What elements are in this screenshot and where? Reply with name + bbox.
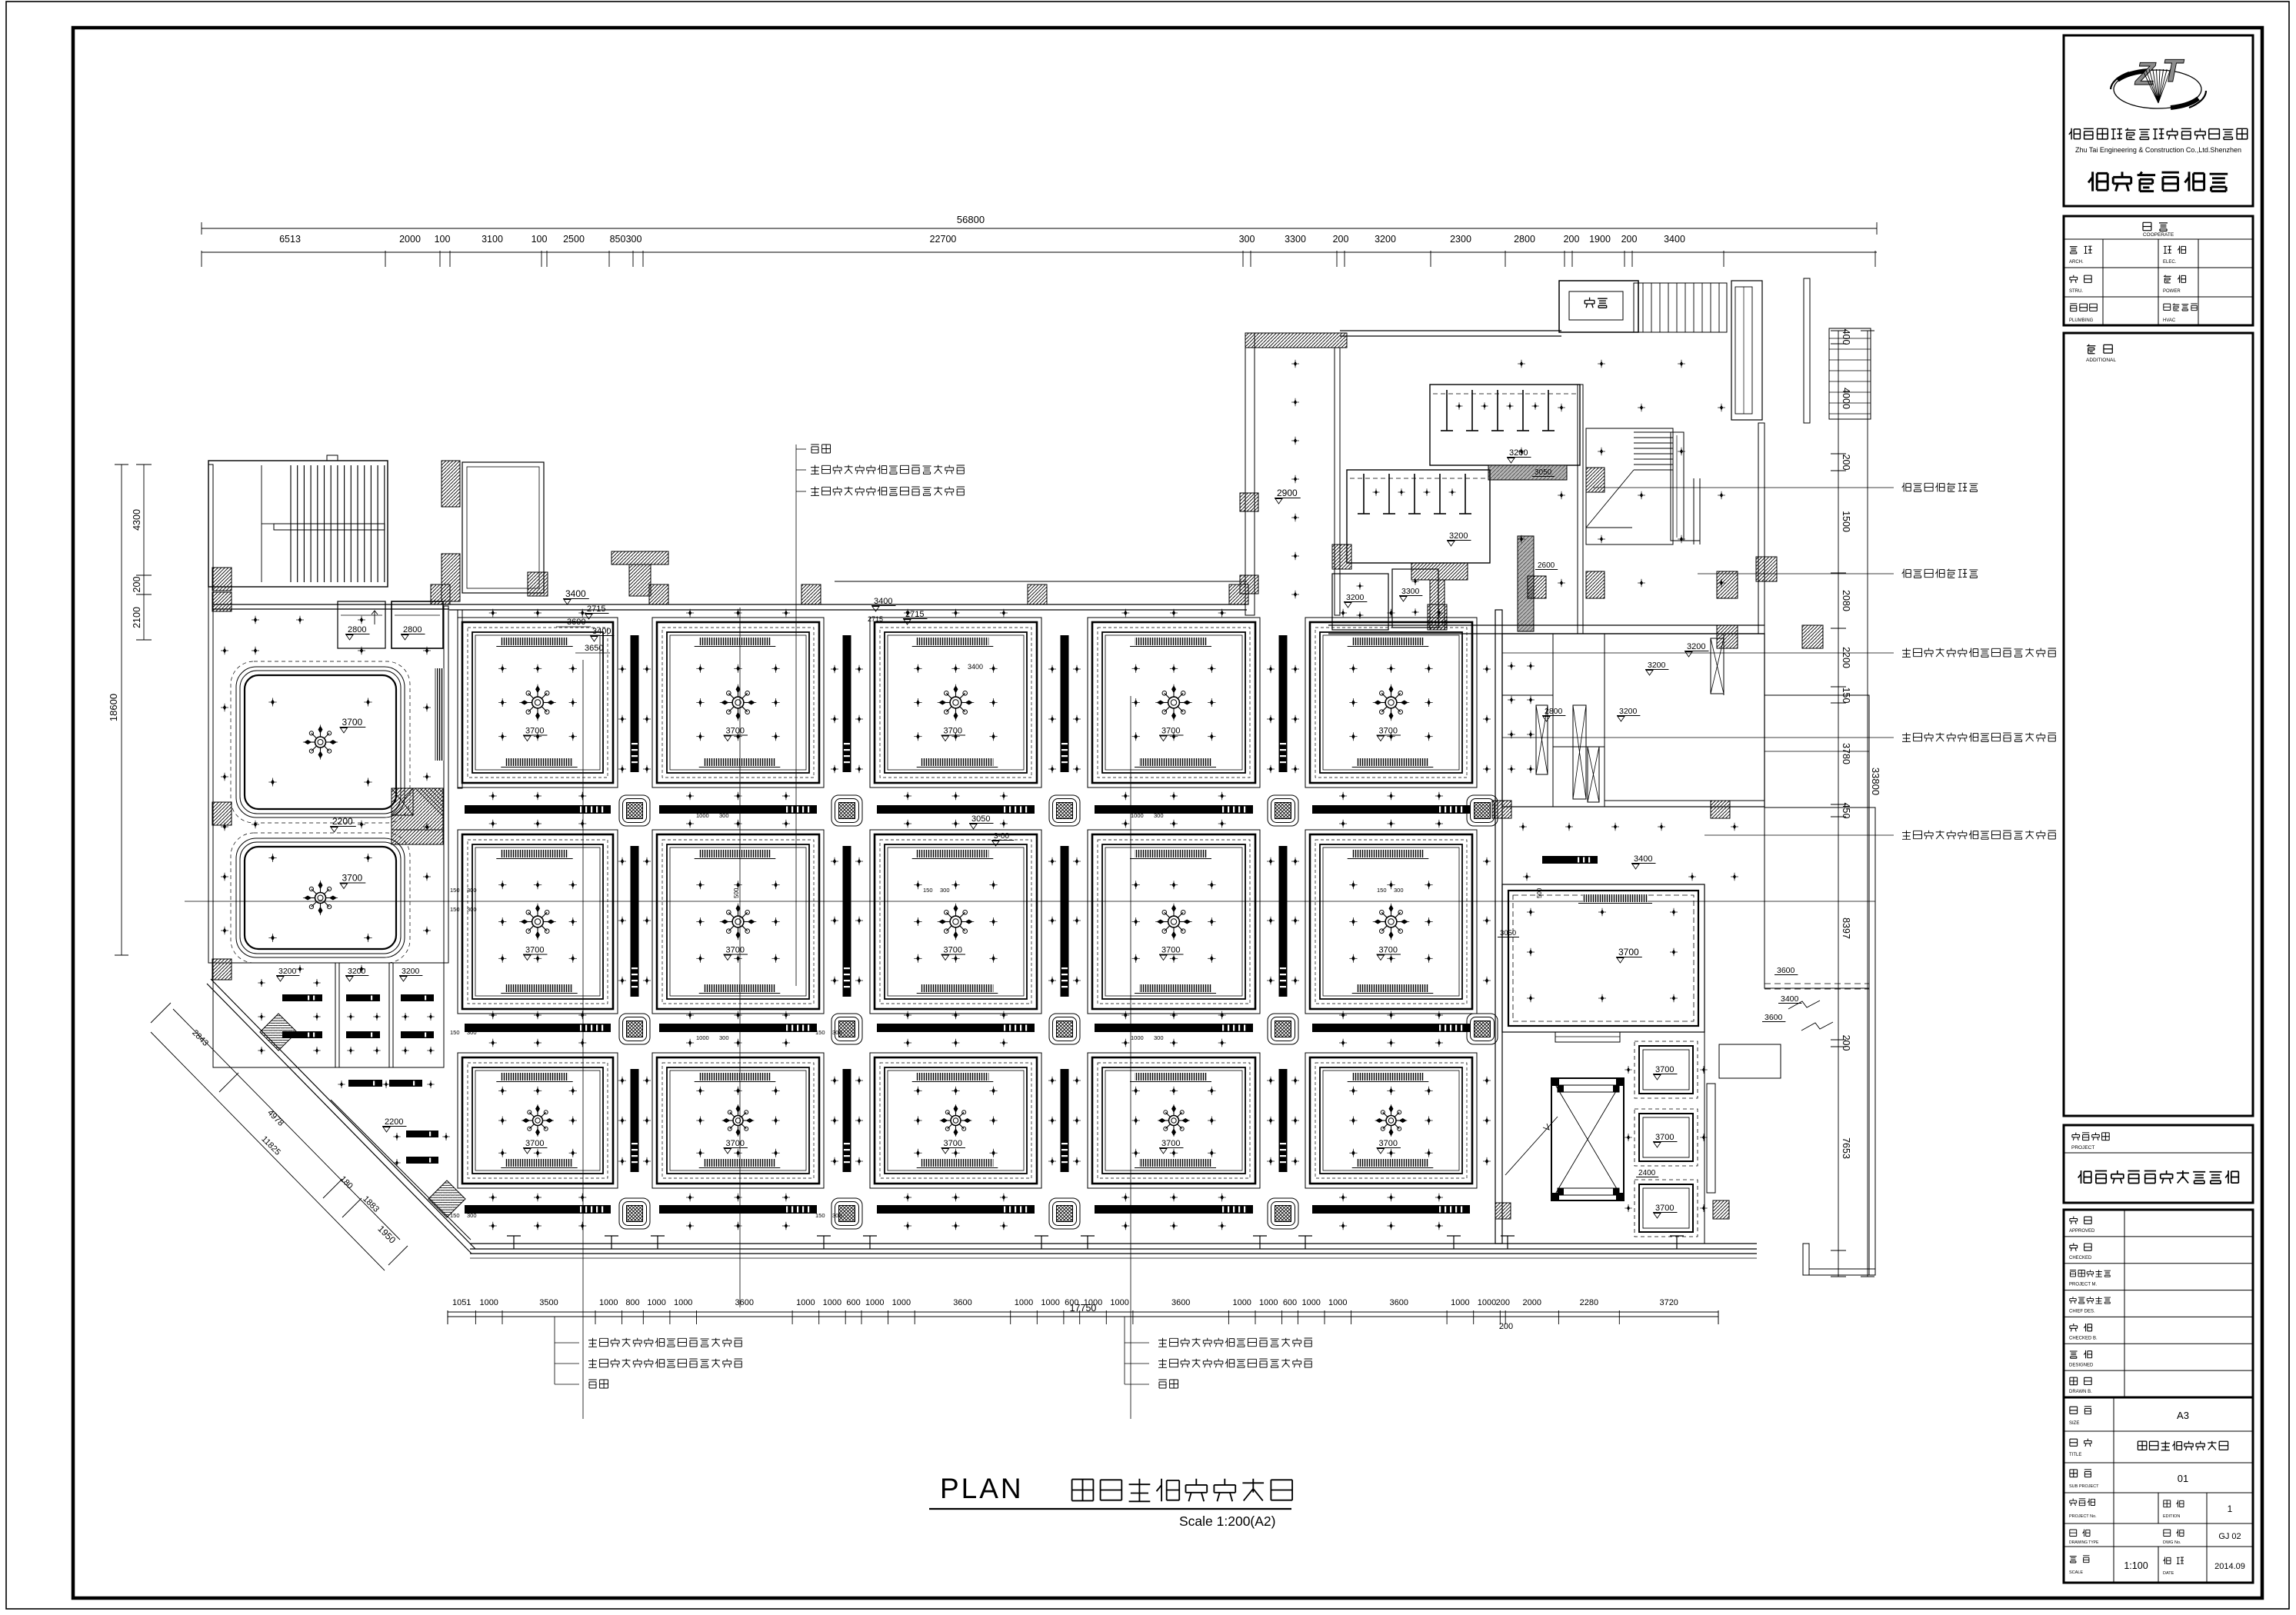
svg-text:PROJECT No.: PROJECT No. bbox=[2069, 1514, 2097, 1519]
svg-text:DESIGNED: DESIGNED bbox=[2069, 1363, 2094, 1367]
svg-text:3200: 3200 bbox=[348, 967, 366, 976]
svg-text:3700: 3700 bbox=[944, 1139, 962, 1148]
svg-text:2500: 2500 bbox=[563, 234, 585, 245]
svg-text:3700: 3700 bbox=[1655, 1204, 1674, 1213]
svg-text:3400: 3400 bbox=[565, 588, 586, 599]
svg-text:600: 600 bbox=[1283, 1298, 1297, 1307]
svg-text:COOPERATE: COOPERATE bbox=[2143, 232, 2174, 238]
svg-text:1000: 1000 bbox=[1328, 1298, 1347, 1307]
svg-text:3050: 3050 bbox=[1500, 929, 1516, 937]
svg-text:3700: 3700 bbox=[525, 1139, 544, 1148]
svg-text:3400: 3400 bbox=[1634, 854, 1652, 864]
svg-text:1000: 1000 bbox=[696, 1034, 709, 1041]
svg-text:2800: 2800 bbox=[348, 625, 366, 634]
svg-text:300: 300 bbox=[1239, 234, 1255, 245]
svg-text:POWER: POWER bbox=[2163, 289, 2181, 294]
svg-text:3200: 3200 bbox=[402, 967, 420, 976]
svg-text:2000: 2000 bbox=[399, 234, 421, 245]
svg-text:300: 300 bbox=[719, 812, 729, 819]
svg-text:200: 200 bbox=[1621, 234, 1638, 245]
svg-text:150: 150 bbox=[450, 1212, 460, 1219]
svg-text:300: 300 bbox=[1154, 812, 1164, 819]
svg-text:2800: 2800 bbox=[403, 625, 422, 634]
svg-text:CHECKED: CHECKED bbox=[2069, 1256, 2092, 1260]
svg-text:3600: 3600 bbox=[735, 1298, 754, 1307]
svg-text:3700: 3700 bbox=[342, 873, 363, 884]
svg-text:3720: 3720 bbox=[1659, 1298, 1678, 1307]
svg-text:3700: 3700 bbox=[1161, 1139, 1180, 1148]
svg-text:200: 200 bbox=[1496, 1298, 1510, 1307]
svg-text:3200: 3200 bbox=[1375, 234, 1396, 245]
svg-text:2200: 2200 bbox=[385, 1117, 403, 1127]
svg-text:200: 200 bbox=[1841, 1035, 1851, 1051]
svg-text:3700: 3700 bbox=[1618, 947, 1639, 957]
svg-text:800: 800 bbox=[625, 1298, 639, 1307]
svg-text:1000: 1000 bbox=[1110, 1298, 1128, 1307]
svg-text:3700: 3700 bbox=[1379, 1139, 1398, 1148]
svg-text:300: 300 bbox=[832, 1029, 842, 1036]
svg-text:1000: 1000 bbox=[892, 1298, 911, 1307]
svg-text:3200: 3200 bbox=[1509, 448, 1528, 458]
svg-text:150: 150 bbox=[450, 1029, 460, 1036]
svg-text:1000: 1000 bbox=[1232, 1298, 1251, 1307]
svg-text:3600: 3600 bbox=[953, 1298, 971, 1307]
svg-text:150: 150 bbox=[815, 1212, 825, 1219]
svg-text:2400: 2400 bbox=[1638, 1169, 1656, 1177]
svg-text:1000: 1000 bbox=[865, 1298, 884, 1307]
svg-text:1000: 1000 bbox=[1259, 1298, 1278, 1307]
svg-text:1000: 1000 bbox=[1131, 812, 1144, 819]
svg-text:1000: 1000 bbox=[1131, 1034, 1144, 1041]
svg-text:4000: 4000 bbox=[1841, 388, 1851, 409]
svg-text:7653: 7653 bbox=[1841, 1137, 1851, 1159]
svg-text:DRAWN B.: DRAWN B. bbox=[2069, 1390, 2092, 1394]
svg-text:300: 300 bbox=[626, 234, 642, 245]
svg-text:3600: 3600 bbox=[1171, 1298, 1190, 1307]
svg-text:3300: 3300 bbox=[1401, 587, 1420, 596]
svg-text:2100: 2100 bbox=[132, 607, 142, 628]
svg-text:SCALE: SCALE bbox=[2069, 1570, 2083, 1575]
svg-text:3200: 3200 bbox=[1619, 707, 1638, 716]
svg-text:3050: 3050 bbox=[971, 814, 990, 824]
svg-text:3700: 3700 bbox=[1655, 1065, 1674, 1074]
svg-text:DRAWING TYPE: DRAWING TYPE bbox=[2069, 1540, 2099, 1545]
svg-text:3700: 3700 bbox=[1161, 946, 1180, 955]
svg-text:3700: 3700 bbox=[944, 727, 962, 736]
svg-text:1051: 1051 bbox=[452, 1298, 471, 1307]
svg-text:1:100: 1:100 bbox=[2124, 1560, 2148, 1571]
svg-text:2715: 2715 bbox=[587, 604, 605, 614]
svg-text:3400: 3400 bbox=[1781, 994, 1799, 1004]
svg-text:3700: 3700 bbox=[1655, 1133, 1674, 1142]
svg-text:3300: 3300 bbox=[1285, 234, 1306, 245]
svg-text:2715: 2715 bbox=[868, 615, 883, 623]
svg-text:2080: 2080 bbox=[1841, 590, 1851, 611]
svg-text:600: 600 bbox=[846, 1298, 860, 1307]
svg-text:300: 300 bbox=[832, 1212, 842, 1219]
svg-text:ADDITIONAL: ADDITIONAL bbox=[2086, 358, 2116, 363]
svg-text:Zhu Tai Engineering & Construc: Zhu Tai Engineering & Construction Co.,L… bbox=[2075, 146, 2241, 154]
svg-text:100: 100 bbox=[435, 234, 451, 245]
svg-text:200: 200 bbox=[1499, 1322, 1513, 1331]
svg-text:4300: 4300 bbox=[132, 509, 142, 531]
svg-text:300: 300 bbox=[467, 887, 477, 894]
svg-text:500: 500 bbox=[733, 887, 740, 898]
svg-text:2800: 2800 bbox=[1545, 707, 1563, 716]
svg-text:22700: 22700 bbox=[930, 234, 957, 245]
svg-text:APPROVED: APPROVED bbox=[2069, 1229, 2095, 1234]
svg-text:Scale 1:200(A2): Scale 1:200(A2) bbox=[1179, 1513, 1276, 1529]
svg-text:200: 200 bbox=[1841, 455, 1851, 471]
svg-text:300: 300 bbox=[940, 887, 950, 894]
svg-text:3500: 3500 bbox=[539, 1298, 558, 1307]
svg-text:1000: 1000 bbox=[796, 1298, 815, 1307]
svg-text:3400: 3400 bbox=[968, 663, 983, 671]
svg-text:1900: 1900 bbox=[1589, 234, 1611, 245]
svg-text:200: 200 bbox=[1564, 234, 1580, 245]
svg-text:3400: 3400 bbox=[1664, 234, 1685, 245]
svg-text:3700: 3700 bbox=[726, 946, 745, 955]
svg-text:1000: 1000 bbox=[1478, 1298, 1496, 1307]
svg-text:150: 150 bbox=[1377, 887, 1387, 894]
svg-text:GJ 02: GJ 02 bbox=[2218, 1532, 2241, 1541]
svg-text:PLUMBING: PLUMBING bbox=[2069, 318, 2094, 323]
svg-text:150: 150 bbox=[923, 887, 933, 894]
svg-text:150: 150 bbox=[450, 887, 460, 894]
svg-text:SIZE: SIZE bbox=[2069, 1421, 2079, 1426]
svg-text:3-00: 3-00 bbox=[994, 832, 1009, 841]
svg-text:450: 450 bbox=[1841, 803, 1851, 819]
svg-text:2300: 2300 bbox=[1450, 234, 1471, 245]
svg-text:56800: 56800 bbox=[957, 214, 985, 225]
svg-text:1000: 1000 bbox=[647, 1298, 665, 1307]
svg-text:3200: 3200 bbox=[1449, 531, 1468, 541]
svg-text:TITLE: TITLE bbox=[2069, 1453, 2081, 1457]
svg-text:3600: 3600 bbox=[1390, 1298, 1408, 1307]
svg-text:Z: Z bbox=[2134, 55, 2156, 92]
svg-text:3780: 3780 bbox=[1841, 743, 1851, 764]
svg-text:3700: 3700 bbox=[525, 946, 544, 955]
svg-text:EDITION: EDITION bbox=[2163, 1514, 2180, 1519]
svg-text:1000: 1000 bbox=[1015, 1298, 1033, 1307]
svg-text:1000: 1000 bbox=[1301, 1298, 1320, 1307]
svg-text:150: 150 bbox=[450, 906, 460, 913]
svg-text:PROJECT M.: PROJECT M. bbox=[2069, 1283, 2098, 1287]
svg-text:300: 300 bbox=[1154, 1034, 1164, 1041]
svg-text:3600: 3600 bbox=[1764, 1013, 1783, 1022]
svg-text:SUB PROJECT: SUB PROJECT bbox=[2069, 1484, 2099, 1489]
svg-text:3700: 3700 bbox=[726, 1139, 745, 1148]
svg-text:300: 300 bbox=[1394, 887, 1404, 894]
svg-text:1000: 1000 bbox=[823, 1298, 841, 1307]
svg-text:3600: 3600 bbox=[1777, 966, 1795, 975]
svg-text:3650: 3650 bbox=[585, 644, 603, 653]
svg-text:2014.09: 2014.09 bbox=[2214, 1562, 2245, 1571]
svg-text:8397: 8397 bbox=[1841, 917, 1851, 939]
svg-text:1000: 1000 bbox=[1451, 1298, 1469, 1307]
svg-text:3050: 3050 bbox=[1535, 468, 1552, 477]
svg-text:18600: 18600 bbox=[108, 694, 119, 721]
svg-text:6513: 6513 bbox=[279, 234, 301, 245]
svg-text:200: 200 bbox=[132, 577, 142, 593]
svg-text:2600: 2600 bbox=[1538, 561, 1555, 570]
svg-text:3700: 3700 bbox=[1379, 727, 1398, 736]
svg-text:3700: 3700 bbox=[726, 727, 745, 736]
svg-text:300: 300 bbox=[467, 906, 477, 913]
svg-text:3700: 3700 bbox=[1379, 946, 1398, 955]
svg-text:300: 300 bbox=[467, 1029, 477, 1036]
svg-text:3700: 3700 bbox=[944, 946, 962, 955]
svg-text:3100: 3100 bbox=[482, 234, 503, 245]
svg-text:ELEC.: ELEC. bbox=[2163, 260, 2177, 265]
svg-text:500: 500 bbox=[1536, 887, 1543, 898]
svg-text:3200: 3200 bbox=[278, 967, 297, 976]
svg-text:33800: 33800 bbox=[1870, 768, 1881, 795]
svg-text:DWG No.: DWG No. bbox=[2163, 1540, 2181, 1545]
svg-text:2280: 2280 bbox=[1580, 1298, 1598, 1307]
svg-text:HVAC: HVAC bbox=[2163, 318, 2176, 323]
svg-text:CHECKED B.: CHECKED B. bbox=[2069, 1336, 2098, 1340]
svg-text:3700: 3700 bbox=[342, 717, 363, 728]
svg-text:2900: 2900 bbox=[1277, 488, 1298, 498]
svg-text:01: 01 bbox=[2178, 1473, 2188, 1484]
svg-text:1000: 1000 bbox=[479, 1298, 498, 1307]
svg-text:2800: 2800 bbox=[1514, 234, 1535, 245]
svg-text:2200: 2200 bbox=[1841, 647, 1851, 668]
svg-text:1000: 1000 bbox=[696, 812, 709, 819]
svg-text:150: 150 bbox=[815, 1029, 825, 1036]
svg-text:A3: A3 bbox=[2177, 1410, 2189, 1421]
svg-text:850: 850 bbox=[610, 234, 626, 245]
svg-text:300: 300 bbox=[467, 1212, 477, 1219]
svg-text:2200: 2200 bbox=[332, 816, 353, 827]
svg-text:3200: 3200 bbox=[1687, 642, 1705, 651]
svg-text:1: 1 bbox=[2228, 1503, 2233, 1514]
svg-text:3200: 3200 bbox=[1346, 593, 1365, 602]
svg-text:1000: 1000 bbox=[1041, 1298, 1059, 1307]
svg-text:3400: 3400 bbox=[874, 597, 892, 606]
svg-text:400: 400 bbox=[1841, 329, 1851, 345]
svg-text:200: 200 bbox=[1333, 234, 1349, 245]
svg-text:17750: 17750 bbox=[1070, 1303, 1097, 1314]
svg-text:300: 300 bbox=[719, 1034, 729, 1041]
svg-text:STRU.: STRU. bbox=[2069, 289, 2083, 294]
svg-text:3700: 3700 bbox=[525, 727, 544, 736]
svg-text:DATE: DATE bbox=[2163, 1571, 2174, 1576]
svg-text:1000: 1000 bbox=[674, 1298, 692, 1307]
svg-text:PLAN: PLAN bbox=[940, 1473, 1024, 1504]
svg-text:ARCH.: ARCH. bbox=[2069, 260, 2084, 265]
svg-text:2000: 2000 bbox=[1523, 1298, 1541, 1307]
svg-text:CHIEF DES.: CHIEF DES. bbox=[2069, 1310, 2095, 1314]
svg-text:3400: 3400 bbox=[592, 627, 611, 636]
svg-text:3700: 3700 bbox=[1161, 727, 1180, 736]
svg-text:1500: 1500 bbox=[1841, 511, 1851, 532]
svg-text:1000: 1000 bbox=[599, 1298, 618, 1307]
svg-text:3200: 3200 bbox=[1648, 661, 1666, 670]
svg-text:PROJECT: PROJECT bbox=[2071, 1145, 2094, 1150]
svg-text:100: 100 bbox=[532, 234, 548, 245]
